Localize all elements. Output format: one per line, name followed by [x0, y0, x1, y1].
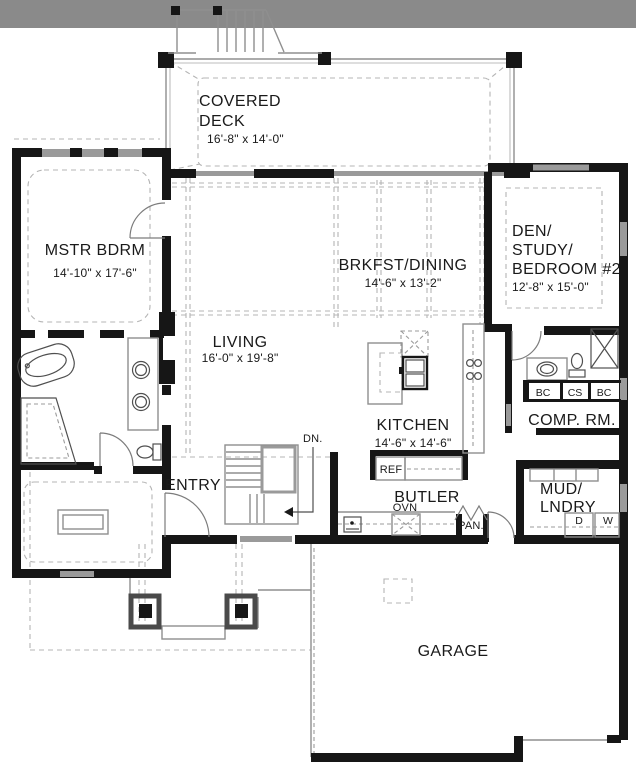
label-covered-deck-2: DECK: [199, 113, 245, 130]
island: [368, 343, 402, 404]
label-garage: GARAGE: [418, 643, 489, 660]
label-living: LIVING: [213, 334, 268, 351]
label-dryer: D: [575, 515, 583, 527]
label-mud-1: MUD/: [540, 481, 583, 498]
butler-counter: [338, 512, 455, 535]
label-dn: DN.: [303, 433, 323, 445]
front-porch: [130, 578, 258, 639]
label-washer: W: [603, 515, 613, 527]
label-ref: REF: [380, 464, 403, 476]
label-bc2: BC: [597, 387, 612, 399]
stair-direction-arrow: [284, 507, 293, 517]
dim-living: 16'-0" x 19'-8": [202, 351, 279, 365]
label-covered-deck-1: COVERED: [199, 93, 281, 110]
toilet: [137, 444, 161, 460]
floor-plan-svg: COVERED DECK 16'-8" x 14'-0" MSTR BDRM 1…: [0, 0, 636, 768]
label-mud-2: LNDRY: [540, 499, 596, 516]
oven-stack: [399, 357, 427, 389]
cooktop-counter: [463, 324, 484, 453]
label-pan: PAN.: [458, 520, 484, 532]
front-door-sill: [240, 536, 292, 542]
dim-covered-deck: 16'-8" x 14'-0": [207, 132, 284, 146]
dim-den: 12'-8" x 15'-0": [512, 280, 589, 294]
dim-mstr-bdrm: 14'-10" x 17'-6": [53, 266, 137, 280]
fireplace: [159, 312, 175, 384]
dim-kitchen: 14'-6" x 14'-6": [375, 436, 452, 450]
window-seat: [60, 571, 94, 577]
label-kitchen: KITCHEN: [376, 417, 449, 434]
label-mstr-bdrm: MSTR BDRM: [45, 242, 145, 259]
skylight-box: [401, 331, 428, 357]
toilet: [569, 354, 585, 378]
label-den-1: DEN/: [512, 223, 552, 240]
walk-in-closet: [24, 482, 152, 562]
bathtub: [14, 340, 78, 390]
dim-brkfst-dining: 14'-6" x 13'-2": [365, 276, 442, 290]
porch-column: [227, 596, 255, 627]
label-ovn: OVN: [393, 502, 417, 514]
shower: [21, 398, 76, 464]
floor-plan-sheet: COVERED DECK 16'-8" x 14'-0" MSTR BDRM 1…: [0, 0, 636, 768]
label-cs: CS: [568, 387, 583, 399]
master-bath: [14, 338, 161, 464]
label-den-2: STUDY/: [512, 242, 573, 259]
covered-deck: [158, 52, 522, 172]
label-bc1: BC: [536, 387, 551, 399]
label-den-3: BEDROOM #2: [512, 261, 621, 278]
label-entry: ENTRY: [165, 477, 221, 494]
porch-steps: [162, 626, 225, 639]
label-comp-rm: COMP. RM.: [528, 412, 616, 429]
label-brkfst-dining: BRKFST/DINING: [339, 257, 468, 274]
double-vanity: [128, 338, 158, 430]
top-crop-band: [0, 0, 636, 28]
